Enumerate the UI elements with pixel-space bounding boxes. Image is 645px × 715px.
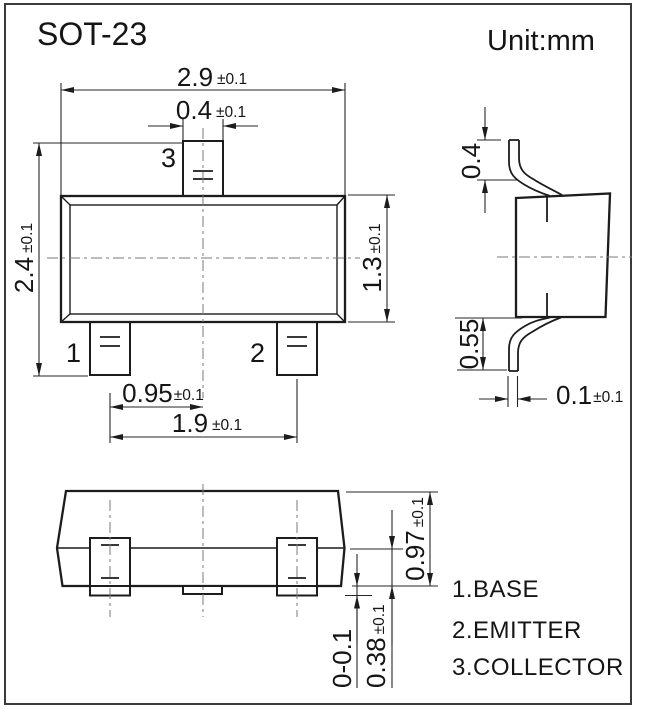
bottom-view: 0.97±0.1 0.38±0.1 0-0.1 bbox=[57, 484, 438, 688]
dim-text: 1.9±0.1 bbox=[172, 408, 242, 438]
dim-text: 1.3±0.1 bbox=[357, 223, 387, 292]
dim-text: 0.38±0.1 bbox=[361, 604, 391, 688]
drawing-sheet: SOT-23 Unit:mm 3 1 2 2.9±0.1 bbox=[0, 0, 645, 715]
top-lead-outline bbox=[509, 140, 562, 196]
front-view: 3 1 2 2.9±0.1 0.4±0.1 2.4±0.1 bbox=[9, 62, 395, 443]
unit-label: Unit:mm bbox=[487, 25, 595, 57]
pin1-lead bbox=[90, 322, 130, 375]
dim-pin-span: 1.9±0.1 bbox=[110, 408, 297, 438]
legend-emitter: 2.EMITTER bbox=[452, 617, 582, 644]
dim-text: 0-0.1 bbox=[327, 629, 357, 688]
pin2-label: 2 bbox=[250, 338, 265, 368]
pin2-lead bbox=[277, 322, 317, 375]
dim-foot-length: 0.38±0.1 bbox=[350, 510, 403, 688]
dim-lead-thickness: 0.1±0.1 bbox=[479, 376, 623, 410]
dim-text: 0.95±0.1 bbox=[122, 378, 204, 408]
dim-text: 2.9±0.1 bbox=[177, 62, 247, 92]
legend-base: 1.BASE bbox=[452, 576, 539, 603]
dim-text: 0.1±0.1 bbox=[556, 380, 623, 410]
side-body-outline bbox=[516, 194, 610, 318]
dim-text: 0.4 bbox=[456, 143, 486, 179]
legend-collector: 3.COLLECTOR bbox=[452, 654, 624, 681]
pin-legend: 1.BASE 2.EMITTER 3.COLLECTOR bbox=[452, 576, 624, 681]
dim-text: 0.55 bbox=[454, 319, 484, 370]
page-title: SOT-23 bbox=[37, 16, 147, 52]
sot23-package-drawing: SOT-23 Unit:mm 3 1 2 2.9±0.1 bbox=[0, 0, 645, 715]
pin1-label: 1 bbox=[66, 338, 81, 368]
dim-text: 2.4±0.1 bbox=[9, 223, 39, 293]
pin3-label: 3 bbox=[161, 143, 176, 173]
dim-shoulder-height: 0.4 bbox=[456, 107, 517, 213]
dim-text: 0.97±0.1 bbox=[400, 497, 430, 581]
side-view: 0.4 0.55 0.1±0.1 bbox=[454, 107, 632, 410]
body-outline bbox=[61, 196, 345, 322]
extension-lines bbox=[508, 376, 518, 407]
dim-text: 0.4±0.1 bbox=[176, 95, 246, 125]
dim-lead-height: 0.55 bbox=[454, 318, 522, 370]
bottom-lead-outline bbox=[509, 318, 561, 372]
